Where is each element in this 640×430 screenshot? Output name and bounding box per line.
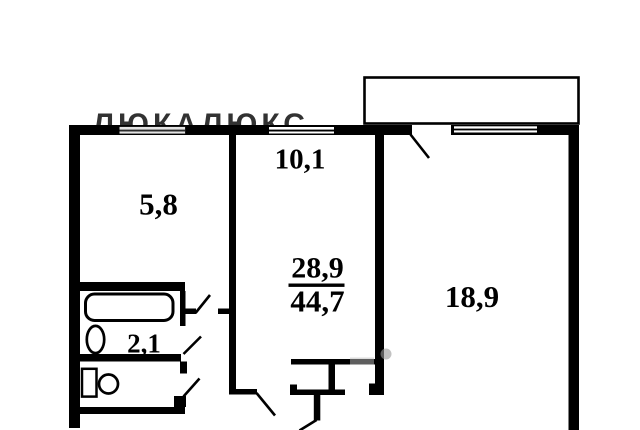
svg-text:18,9: 18,9 [445, 279, 499, 314]
svg-text:5,8: 5,8 [139, 187, 178, 222]
svg-text:10,1: 10,1 [275, 144, 326, 176]
svg-text:44,7: 44,7 [290, 284, 344, 319]
svg-text:28,9: 28,9 [291, 252, 344, 285]
svg-text:2,1: 2,1 [127, 329, 161, 359]
svg-text:ЛЮКАЛЮКС: ЛЮКАЛЮКС [93, 108, 309, 141]
